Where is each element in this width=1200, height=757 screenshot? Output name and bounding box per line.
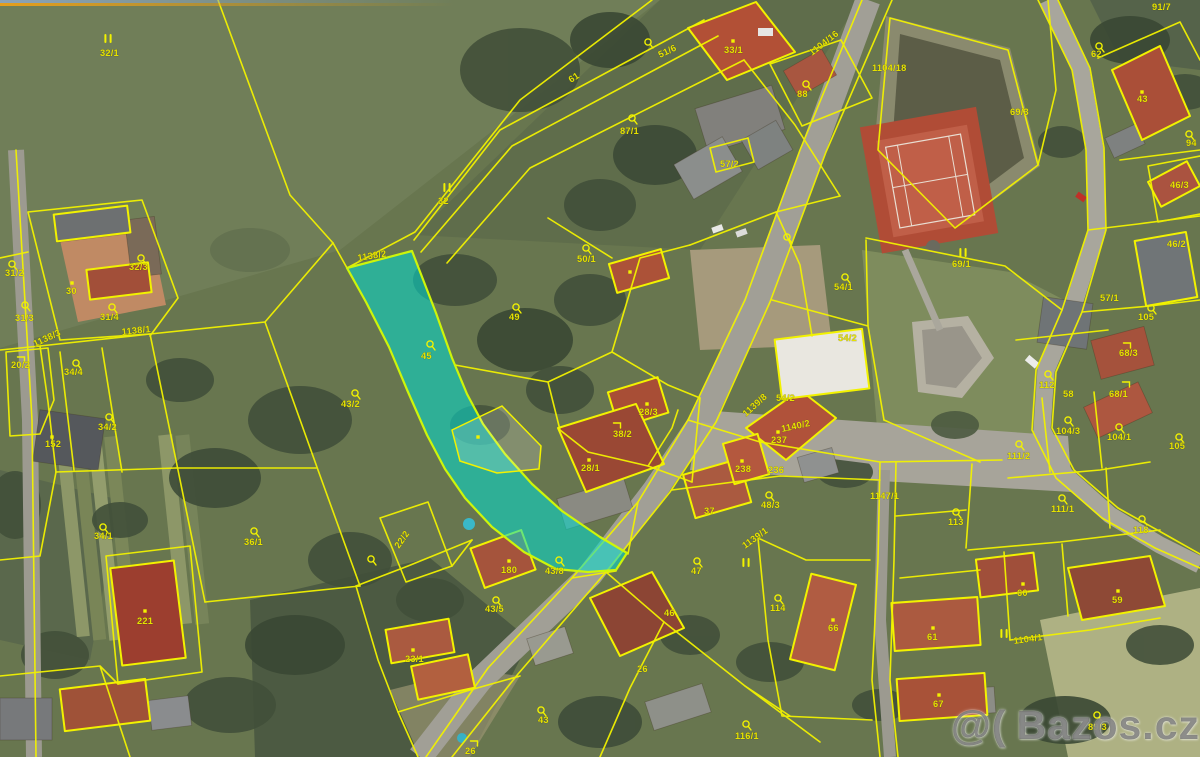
watermark-text: Bazos.cz [1017,702,1200,748]
parcel-label: 104/3 [1056,426,1080,436]
parcel-label: 43/5 [485,604,504,614]
parcel-label: 34/2 [98,422,117,432]
parcel-label: 49 [509,312,520,322]
parcel-label: 180 [501,565,517,575]
parcel-label: 60 [1017,588,1028,598]
parcel-label: 54/2 [776,393,795,403]
dot-symbol [937,693,940,696]
parcel-label: 20/2 [11,360,30,370]
parcel-label: 58 [1063,389,1074,399]
parcel-label: 91/7 [1152,2,1171,12]
parcel-label: 34/1 [94,531,113,541]
parcel-label: 111/2 [1007,451,1030,461]
parcel-label: 34/4 [64,367,84,377]
parcel-label: 116/1 [735,731,759,741]
parcel-label: 57/1 [1100,293,1119,303]
parcel-label: 69/3 [1010,107,1029,117]
dot-symbol [1116,589,1119,592]
parcel-label: 1104/18 [872,63,907,73]
parcel-label: 26 [465,746,476,756]
parcel-label: 28/3 [639,407,658,417]
parcel-label: 113 [948,517,964,527]
bazos-watermark: @(Bazos.cz [951,702,1200,749]
dot-symbol [143,609,146,612]
parcel-label: 112 [1039,380,1055,390]
parcel-label: 54/2 [838,333,857,343]
dot-symbol [628,270,631,273]
parcel-label: 94 [1186,138,1197,148]
dot-symbol [507,559,510,562]
parcel-label: 237 [771,435,787,445]
dot-symbol [70,281,73,284]
parcel-label: 105 [1138,312,1154,322]
parcel-label: 45 [421,351,432,361]
parcel-label: 46/3 [1170,180,1189,190]
parcel-label: 32/3 [129,262,148,272]
parcel-label: 31/3 [15,313,34,323]
parcel-label: 37 [704,506,715,516]
parcel-label: 88 [797,89,808,99]
parcel-label: 104/1 [1107,432,1131,442]
parcel-label: 68/3 [1119,348,1138,358]
parcel-label: 32 [438,196,449,206]
dot-symbol [731,39,734,42]
dot-symbol [931,626,934,629]
parcel-label: 47 [691,566,702,576]
parcel-label: 87/1 [620,126,639,136]
parcel-label: 59 [1112,595,1123,605]
parcel-label: 118 [1133,525,1149,535]
dot-symbol [411,648,414,651]
dot-symbol [776,430,779,433]
dot-symbol [587,458,590,461]
photo-edge-artifact [0,0,455,6]
parcel-label: 66 [828,623,839,633]
dot-symbol [476,435,479,438]
parcel-label: 43 [1137,94,1148,104]
parcel-label: 1147/1 [870,491,899,501]
parcel-label: 23/1 [405,654,424,664]
parcel-label: 46/2 [1167,239,1186,249]
parcel-label: 111/1 [1051,504,1074,514]
parcel-label: 67 [933,699,944,709]
parcel-label: 57/2 [720,159,739,169]
parcel-label: 61 [927,632,938,642]
parcel-label: 68/1 [1109,389,1128,399]
dot-symbol [831,618,834,621]
parcel-label: 105 [1169,441,1185,451]
parcel-label: 43/2 [341,399,360,409]
parcel-label: 236 [768,465,784,475]
parcel-label: 26 [637,664,648,674]
parcel-label: 38/2 [613,429,632,439]
cadastral-map: 32/1326151/633/187/1881104/161104/1891/7… [0,0,1200,757]
parcel-label: 54/1 [834,282,853,292]
parcel-label: 36/1 [244,537,263,547]
parcel-label: 31/4 [100,312,120,322]
parcel-label: 221 [137,616,153,626]
camera-icon: @( [951,702,1007,748]
parcel-label: 50/1 [577,254,596,264]
listing-map-image: 32/1326151/633/187/1881104/161104/1891/7… [0,0,1200,757]
parcel-label: 30 [66,286,77,296]
parcel-label: 152 [45,439,61,449]
parcel-label: 62 [1091,49,1102,59]
parcel-label: 33/1 [724,45,743,55]
parcel-label: 31/2 [5,268,24,278]
parcel-label: 28/1 [581,463,600,473]
dot-symbol [1021,582,1024,585]
parcel-label: 32/1 [100,48,119,58]
dot-symbol [740,459,743,462]
parcel-label: 43 [538,715,549,725]
parcel-label: 238 [735,464,751,474]
parcel-label: 69/1 [952,259,971,269]
parcel-label: 114 [770,603,786,613]
dot-symbol [645,402,648,405]
parcel-label: 48/3 [761,500,780,510]
parcel-label: 46 [664,608,675,618]
parcel-label: 43/8 [545,566,564,576]
